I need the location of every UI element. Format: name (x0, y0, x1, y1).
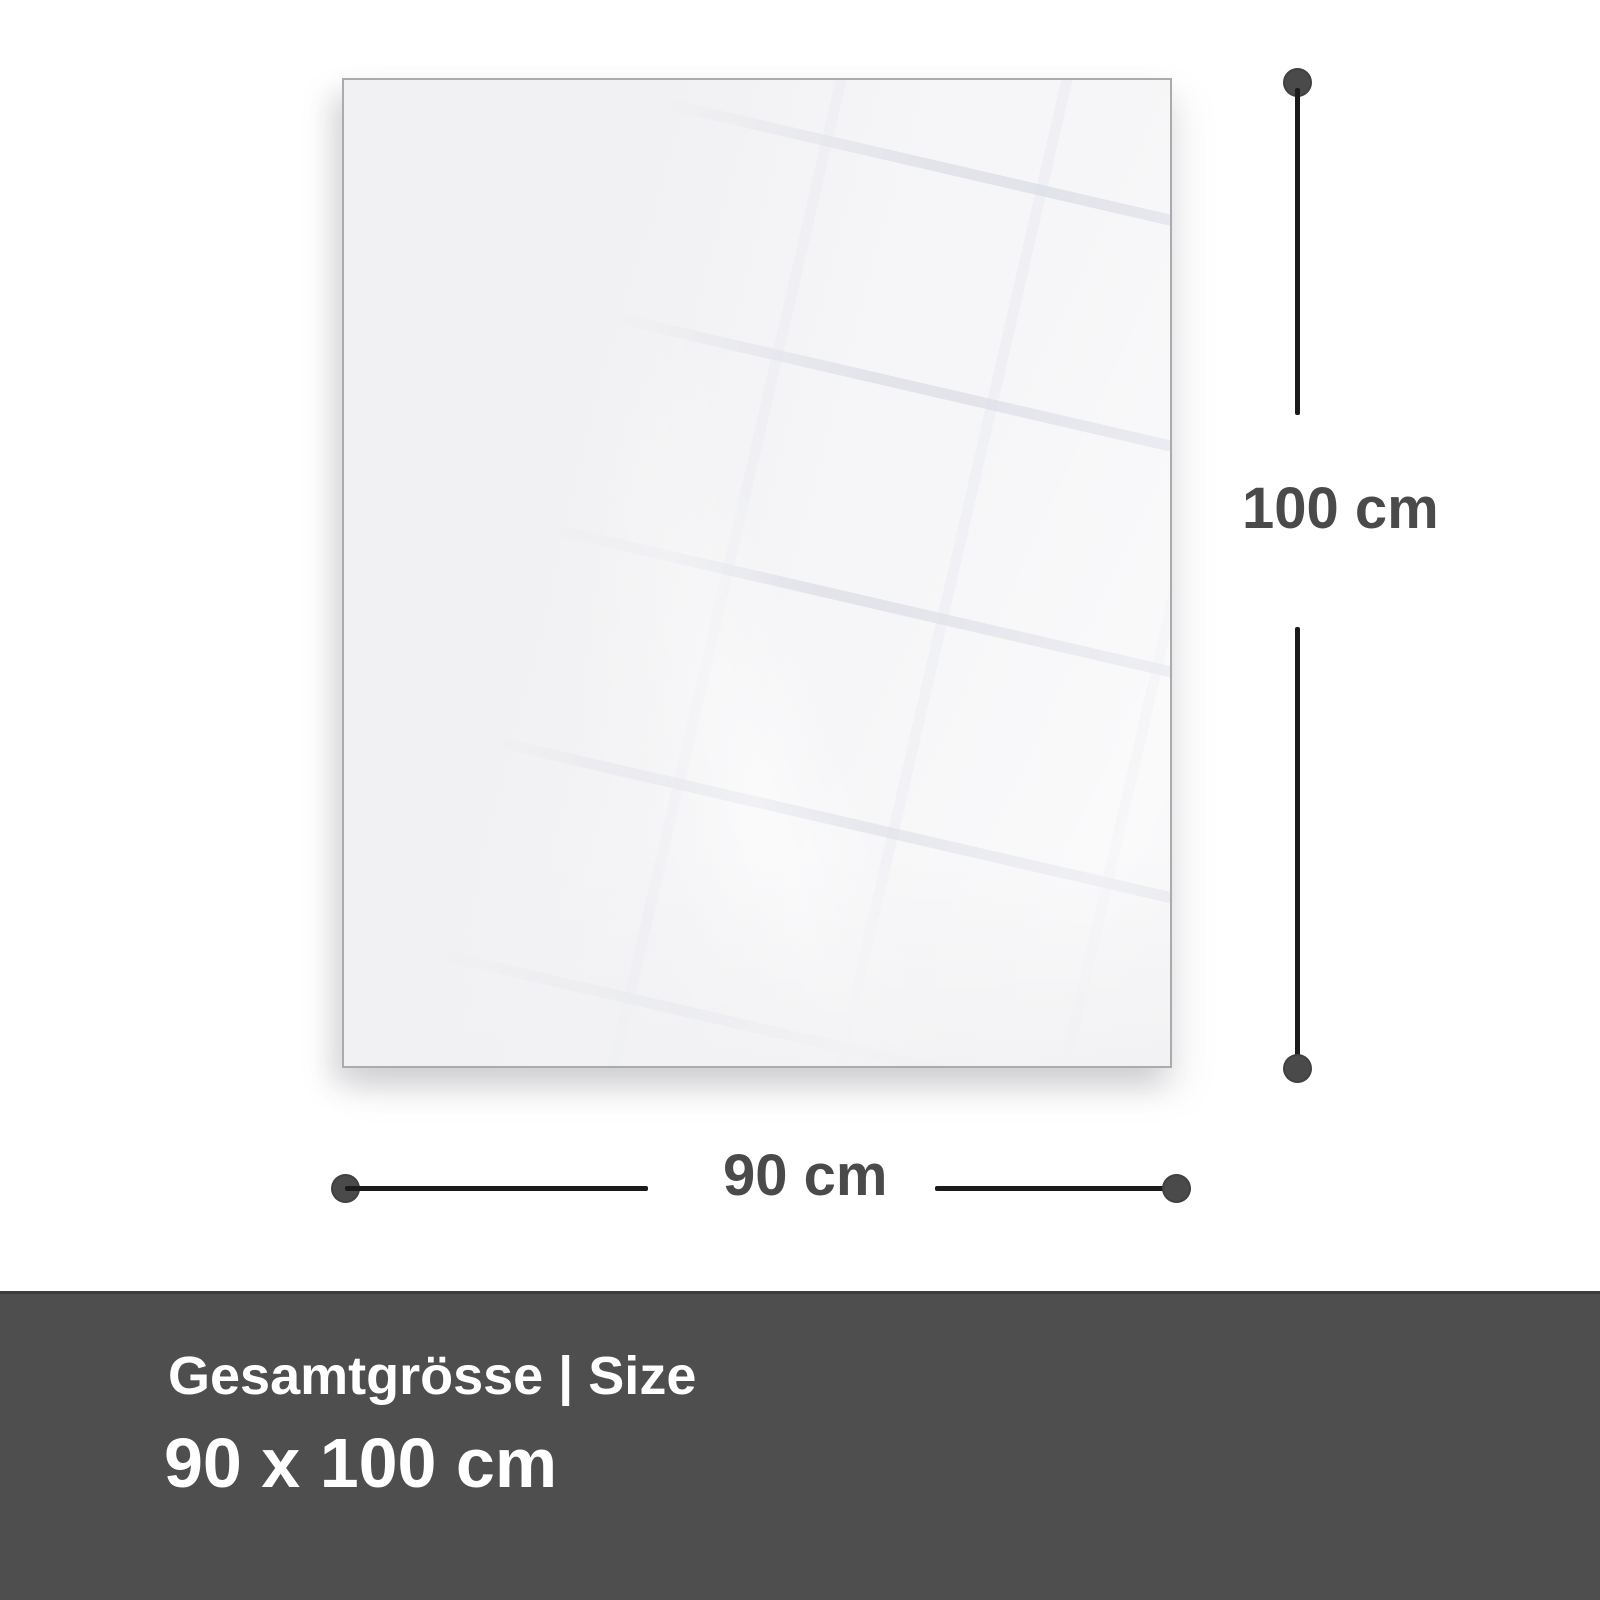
height-dimension-label: 100 cm (1242, 480, 1439, 538)
width-dimension-line-right (935, 1186, 1176, 1191)
product-panel (342, 78, 1172, 1068)
product-size-diagram: 100 cm 90 cm Gesamtgrösse | Size 90 x 10… (0, 0, 1600, 1600)
height-dimension-line-upper (1295, 88, 1300, 415)
dimension-endpoint-dot-bottom (1283, 1054, 1312, 1083)
width-dimension-line-left (345, 1186, 648, 1191)
height-dimension-line-lower (1295, 627, 1300, 1057)
reflection-fade-overlay (344, 80, 1170, 1066)
width-dimension-label: 90 cm (723, 1147, 887, 1205)
footer-size-heading: Gesamtgrösse | Size (168, 1349, 696, 1403)
footer-size-value: 90 x 100 cm (164, 1428, 557, 1498)
dimension-endpoint-dot-right (1162, 1174, 1191, 1203)
